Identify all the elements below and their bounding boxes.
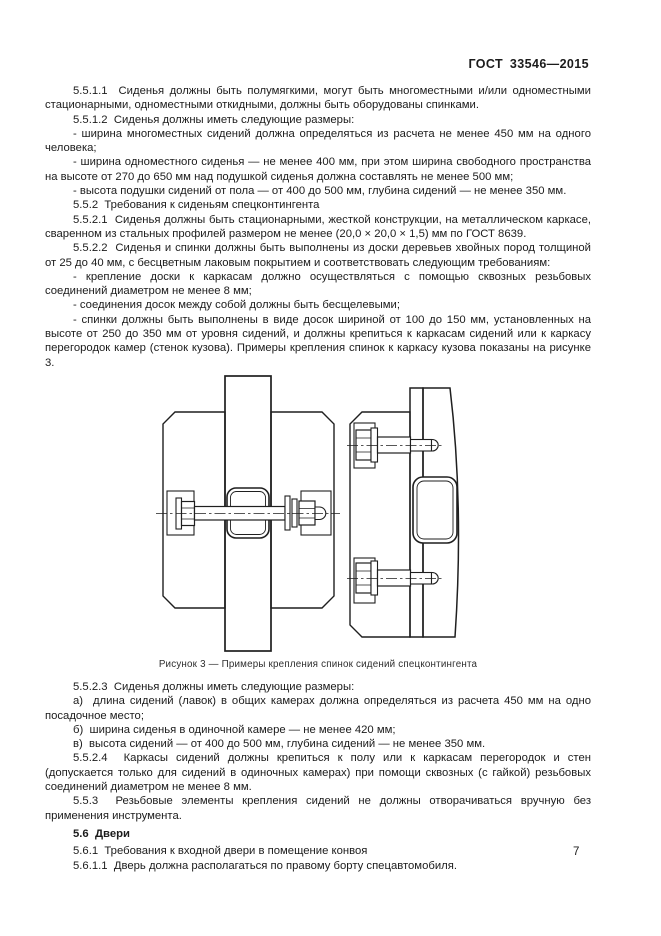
paragraph: 5.5.2.2 Сиденья и спинки должны быть вып… [45,241,591,270]
paragraph: - спинки должны быть выполнены в виде до… [45,313,591,370]
paragraph: б) ширина сиденья в одиночной камере — н… [45,723,591,737]
paragraph: 5.5.2.3 Сиденья должны иметь следующие р… [45,680,591,694]
paragraph: - высота подушки сидений от пола — от 40… [45,184,591,198]
paragraph: а) длина сидений (лавок) в общих камерах… [45,694,591,723]
paragraph: в) высота сидений — от 400 до 500 мм, гл… [45,737,591,751]
paragraph: 5.5.2 Требования к сиденьям спецконтинге… [45,198,591,212]
paragraph: 5.5.1.2 Сиденья должны иметь следующие р… [45,113,591,127]
document-page: ГОСТ 33546—2015 5.5.1.1 Сиденья должны б… [0,0,661,936]
paragraph: 5.6.1.1 Дверь должна располагаться по пр… [45,859,591,873]
figure-caption: Рисунок 3 — Примеры крепления спинок сид… [45,659,591,671]
paragraph: - соединения досок между собой должны бы… [45,298,591,312]
figure-3: Рисунок 3 — Примеры крепления спинок сид… [45,374,591,671]
paragraph: - крепление доски к каркасам должно осущ… [45,270,591,299]
left-assembly-backrest-on-partition [156,376,340,651]
doc-code-header: ГОСТ 33546—2015 [468,57,589,71]
paragraph: 5.5.1.1 Сиденья должны быть полумягкими,… [45,84,591,113]
paragraph: - ширина многоместных сидений должна опр… [45,127,591,156]
paragraph: - ширина одноместного сиденья — не менее… [45,155,591,184]
right-assembly-backrest-on-body-wall [347,388,459,637]
paragraph: 5.5.2.1 Сиденья должны быть стационарным… [45,213,591,242]
paragraph: 5.5.3 Резьбовые элементы крепления сиден… [45,794,591,823]
paragraph: 5.5.2.4 Каркасы сидений должны крепиться… [45,751,591,794]
page-body: 5.5.1.1 Сиденья должны быть полумягкими,… [45,84,591,873]
page-number: 7 [573,846,579,858]
paragraph: 5.6.1 Требования к входной двери в помещ… [45,844,591,858]
section-heading-doors: 5.6 Двери [45,827,591,841]
figure-3-drawing [138,374,563,652]
